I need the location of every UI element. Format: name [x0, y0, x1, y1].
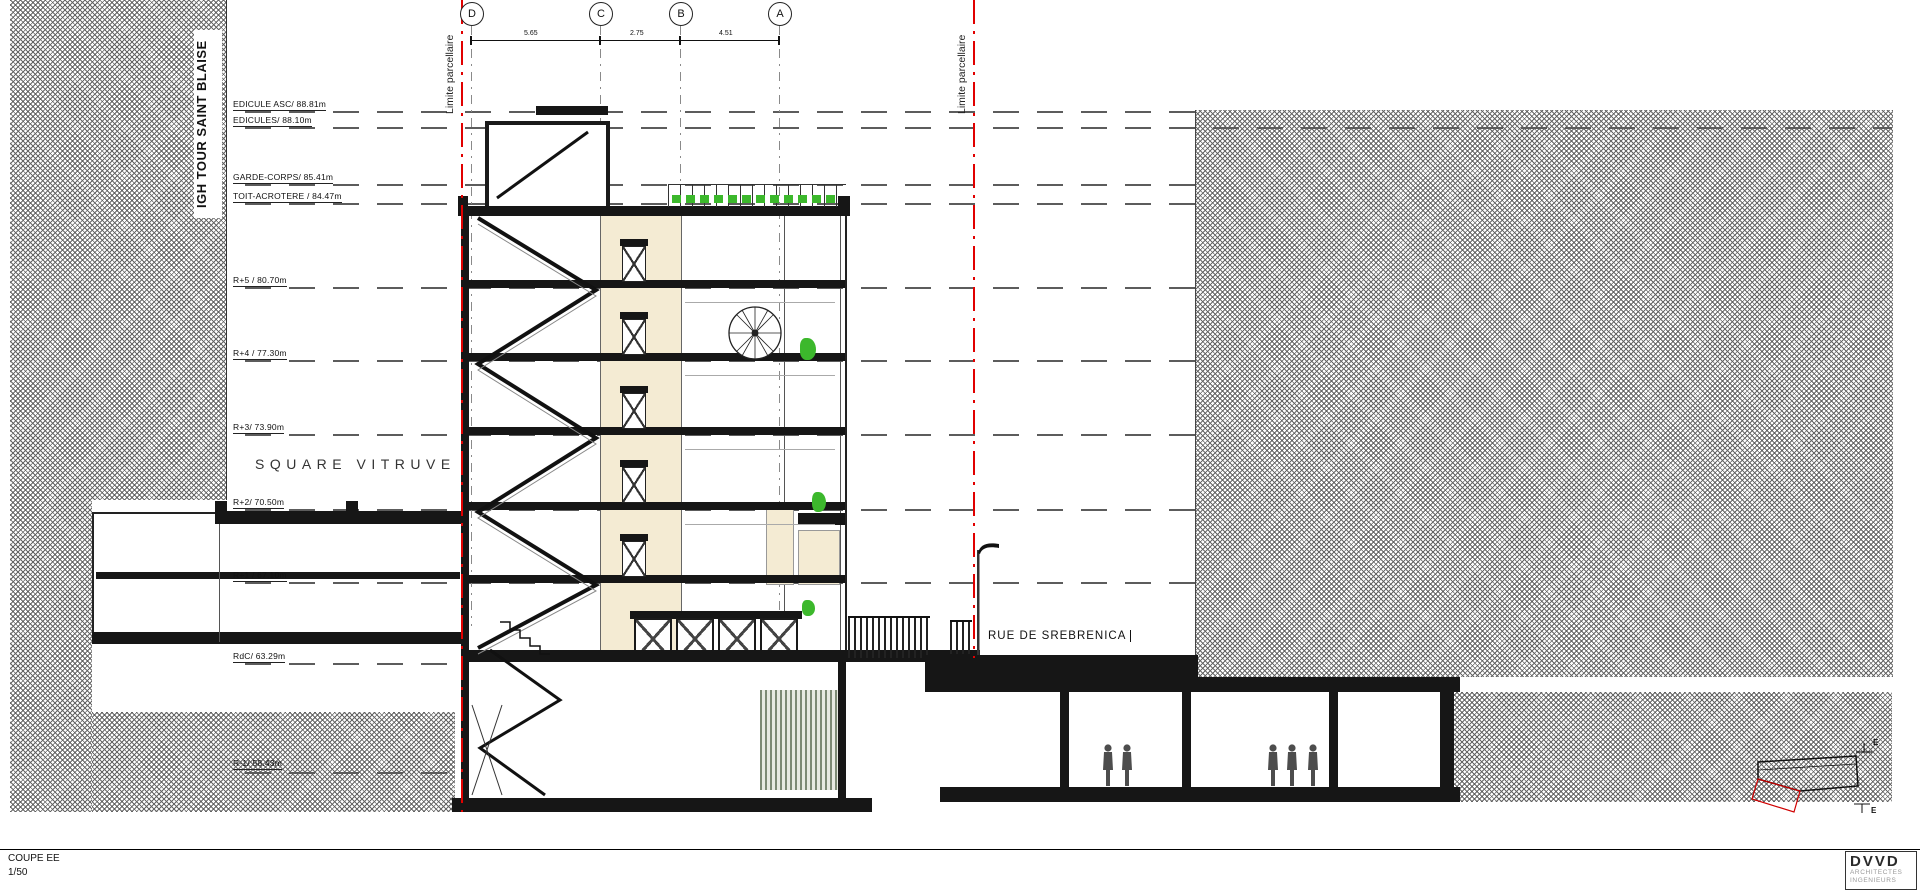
parcel-limit-line-right — [973, 0, 975, 658]
parcel-limit-label-right: Limite parcellaire — [956, 28, 970, 120]
spiral-stair — [729, 307, 781, 359]
logo-line2: INGENIEURS — [1846, 877, 1916, 885]
linework-overlay — [0, 0, 1920, 894]
drawing-scale: 1/50 — [8, 867, 27, 878]
site-label-igh-tour-saint-blaise: IGH TOUR SAINT BLAISE — [194, 30, 222, 218]
level-label-edicules: EDICULES/ 88.10m — [233, 115, 312, 127]
logo-name: DVVD — [1846, 852, 1916, 869]
stair-zigzag-tread-line — [478, 224, 596, 654]
grid-bubble-d: D — [460, 2, 484, 26]
level-label-edicule-asc: EDICULE ASC/ 88.81m — [233, 99, 326, 111]
level-label-r4: R+4 / 77.30m — [233, 348, 287, 360]
people-group — [1103, 744, 1318, 786]
drawing-canvas: 5.65 2.75 4.51 — [0, 0, 1920, 894]
section-marker-e-bottom: E — [1871, 806, 1876, 815]
logo-box: DVVD ARCHITECTES INGENIEURS — [1845, 851, 1917, 890]
level-label-r1: R+1 / 67.10m — [233, 570, 287, 582]
level-label-r5: R+5 / 80.70m — [233, 275, 287, 287]
grid-bubble-a: A — [768, 2, 792, 26]
level-label-rdc: RdC/ 63.29m — [233, 651, 285, 663]
rue-de-srebrenica-label: RUE DE SREBRENICA — [988, 630, 1131, 642]
square-vitruve-label: SQUARE VITRUVE — [255, 456, 456, 472]
level-label-r2: R+2/ 70.50m — [233, 497, 284, 509]
logo-line1: ARCHITECTES — [1846, 869, 1916, 877]
grid-bubble-b: B — [669, 2, 693, 26]
level-label-garde-corps: GARDE-CORPS/ 85.41m — [233, 172, 333, 184]
level-label-r-1: R-1/ 58.43m — [233, 758, 282, 770]
titlebar-divider — [0, 849, 1920, 850]
basement-stair-zigzag — [480, 650, 560, 795]
drawing-title: COUPE EE — [8, 853, 60, 864]
level-label-r3: R+3/ 73.90m — [233, 422, 284, 434]
level-label-toit: TOIT-ACROTERE / 84.47m — [233, 191, 342, 203]
section-marker-e-top: E — [1873, 738, 1878, 747]
edicule-stair-diagonal — [497, 132, 588, 198]
grid-bubble-c: C — [589, 2, 613, 26]
parcel-limit-label-left: Limite parcellaire — [444, 28, 458, 120]
key-plan — [1752, 743, 1872, 813]
parcel-limit-line-left — [461, 0, 463, 812]
